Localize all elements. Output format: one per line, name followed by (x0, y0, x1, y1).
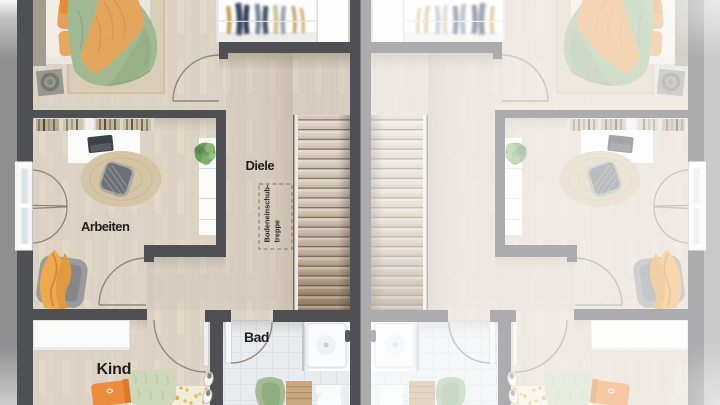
svg-text:Kind: Kind (97, 361, 132, 378)
svg-text:treppe: treppe (273, 220, 282, 243)
svg-text:Bad: Bad (244, 329, 269, 345)
svg-text:Bodeneinschub-: Bodeneinschub- (263, 184, 272, 242)
svg-text:Diele: Diele (246, 158, 275, 173)
svg-text:Arbeiten: Arbeiten (81, 219, 130, 234)
